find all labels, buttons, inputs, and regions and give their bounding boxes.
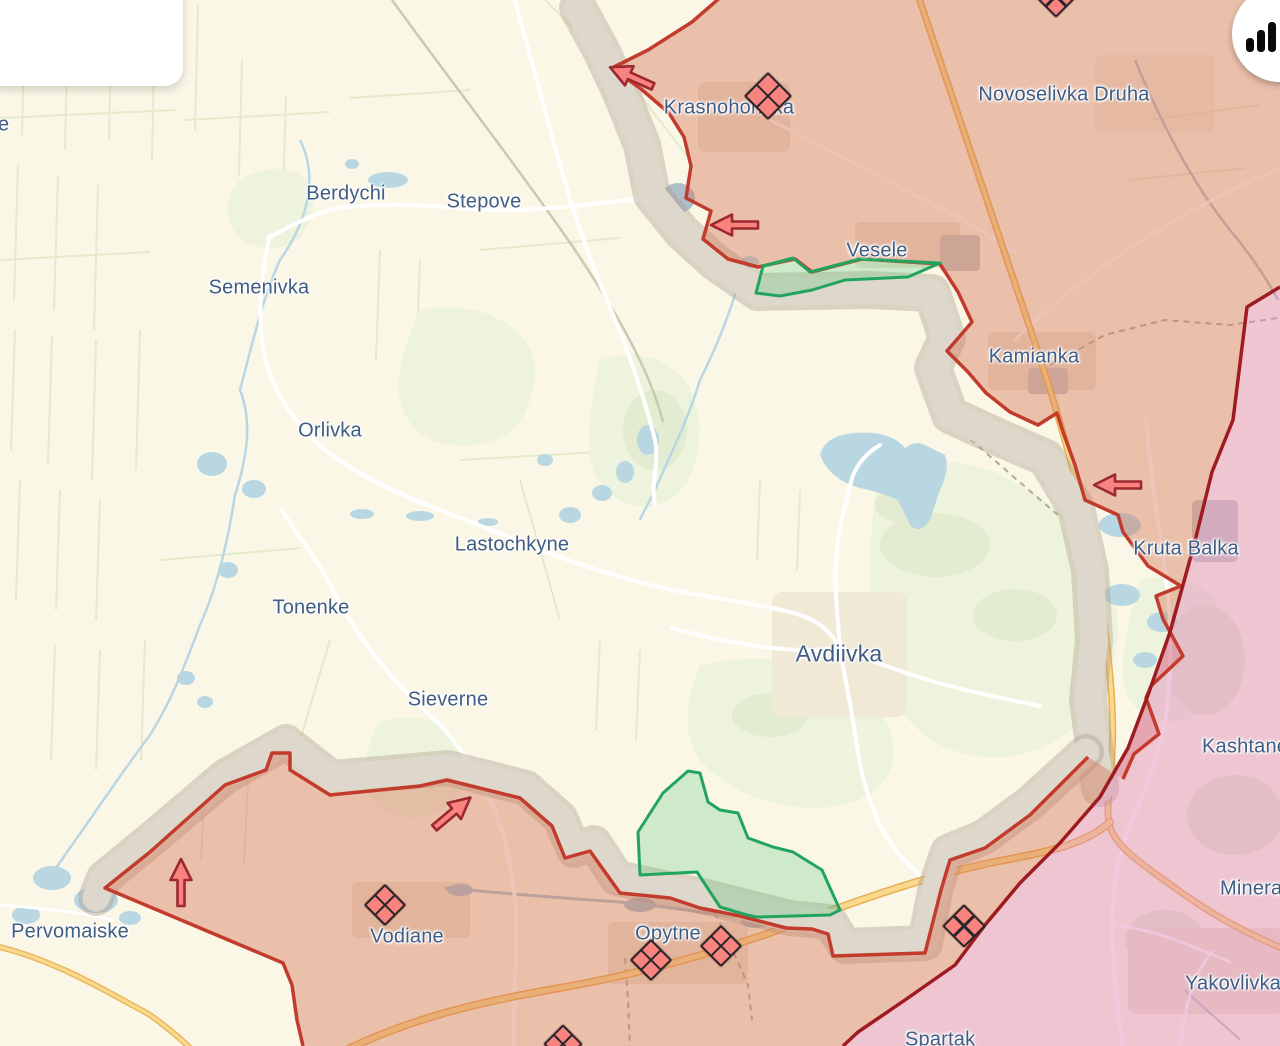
town-label-lastochkyne: Lastochkyne — [455, 534, 570, 557]
town-label-stepove: Stepove — [447, 191, 522, 214]
town-label-vodiane: Vodiane — [370, 926, 444, 949]
town-label-sieverne: Sieverne — [408, 689, 489, 712]
town-label-yakovlivka: Yakovlivka — [1185, 973, 1280, 996]
attack-arrow-icon — [1087, 472, 1149, 498]
attack-arrow-icon — [704, 212, 766, 238]
town-label-semenivka: Semenivka — [209, 277, 310, 300]
town-label-opytne: Opytne — [635, 923, 701, 946]
town-label-mineralne: Mineralne — [1220, 878, 1280, 901]
town-label-vesele: Vesele — [846, 240, 907, 263]
town-label-berdychi: Berdychi — [306, 183, 385, 206]
town-label-kruta-balka: Kruta Balka — [1133, 538, 1239, 561]
town-label-novoselivka-druha: Novoselivka Druha — [978, 84, 1149, 107]
town-label-kamianka: Kamianka — [989, 346, 1080, 369]
attack-arrow-icon — [168, 852, 194, 914]
town-label-avdiivka: Avdiivka — [796, 641, 883, 668]
town-label-kashtane: Kashtane — [1202, 736, 1280, 759]
info-card — [0, 0, 183, 86]
town-label-orlivka: Orlivka — [298, 420, 362, 443]
town-label-spartak: Spartak — [905, 1029, 975, 1046]
town-label-tonenke: Tonenke — [272, 597, 349, 620]
map-viewport[interactable]: BerdychiStepoveSemenivkaOrlivkaLastochky… — [0, 0, 1280, 1046]
town-label-e: e — [0, 114, 9, 137]
town-label-pervomaiske: Pervomaiske — [11, 921, 129, 944]
